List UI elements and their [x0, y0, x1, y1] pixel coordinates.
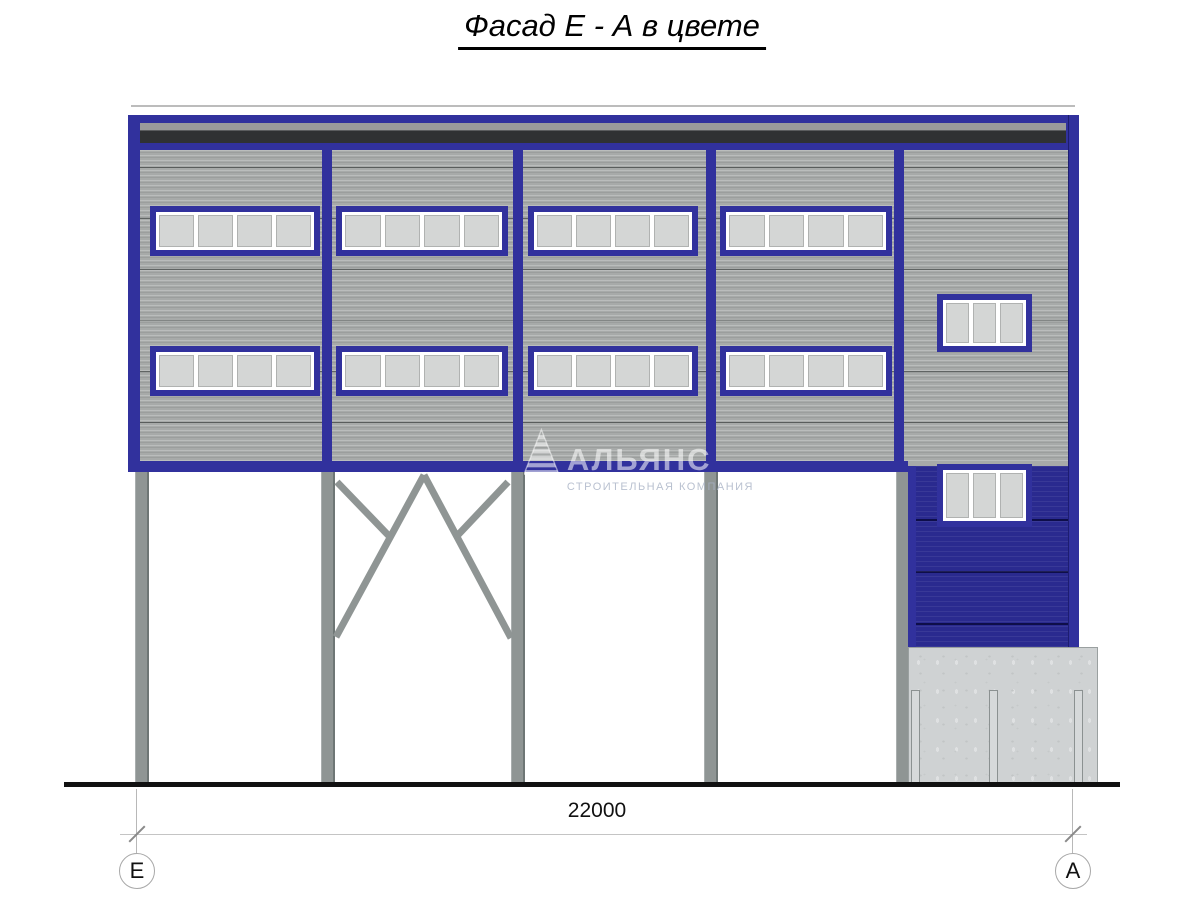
window-band [150, 206, 320, 256]
foundation-block [908, 647, 1098, 785]
window-pane [276, 355, 311, 387]
window-pane [159, 355, 194, 387]
roof-coping-line [131, 105, 1075, 107]
window-frame [342, 352, 502, 390]
window-pane [946, 473, 969, 518]
window-pane [615, 355, 650, 387]
window-pane [576, 215, 611, 247]
dimension-line [120, 834, 1087, 835]
window-pane [654, 215, 689, 247]
window-pane [848, 355, 884, 387]
window-pane [808, 215, 844, 247]
window-pane [424, 215, 460, 247]
window-pane [615, 215, 650, 247]
mullion [513, 150, 523, 462]
window-pane [973, 303, 996, 343]
window-band [720, 206, 892, 256]
drawing-title: Фасад Е - А в цвете [458, 8, 766, 50]
window-pane [729, 215, 765, 247]
mullion [322, 150, 332, 462]
parapet-gray-strip [140, 123, 1066, 130]
window-pane [198, 355, 233, 387]
window-pane [276, 215, 311, 247]
window-frame [943, 300, 1026, 346]
column [135, 472, 149, 783]
foundation-slot [911, 690, 920, 786]
window-pane [808, 355, 844, 387]
window-frame [534, 352, 692, 390]
window-pane [769, 215, 805, 247]
bottom-band [128, 461, 908, 472]
window-frame [156, 352, 314, 390]
window-pane [345, 355, 381, 387]
parapet-band [128, 115, 1078, 150]
window-pane [237, 215, 272, 247]
window-band [336, 346, 508, 396]
mullion [706, 150, 716, 462]
axis-marker-a: А [1055, 853, 1091, 889]
window-pane [729, 355, 765, 387]
window-pane [464, 215, 500, 247]
window-band [720, 346, 892, 396]
window-pane [537, 215, 572, 247]
window-pane [237, 355, 272, 387]
window-pane [654, 355, 689, 387]
window-pane [198, 215, 233, 247]
dimension-value: 22000 [547, 799, 647, 823]
small-window [937, 294, 1032, 352]
window-frame [156, 212, 314, 250]
right-pilaster [1068, 115, 1079, 647]
window-frame [342, 212, 502, 250]
window-pane [848, 215, 884, 247]
column [704, 472, 718, 783]
ground-line [64, 782, 1120, 787]
window-pane [946, 303, 969, 343]
window-pane [464, 355, 500, 387]
window-frame [534, 212, 692, 250]
siding-wall [140, 150, 1070, 462]
column [511, 472, 525, 783]
window-band [150, 346, 320, 396]
small-window [937, 464, 1032, 527]
parapet-dark-strip [140, 130, 1066, 143]
window-frame [726, 352, 886, 390]
window-frame [943, 470, 1026, 521]
window-band [528, 346, 698, 396]
window-pane [159, 215, 194, 247]
left-pilaster [128, 115, 140, 472]
window-pane [385, 355, 421, 387]
elevation-drawing: Фасад Е - А в цвете [0, 0, 1200, 900]
window-band [528, 206, 698, 256]
window-pane [1000, 303, 1023, 343]
extension-line-left [136, 789, 137, 853]
watermark-tagline: СТРОИТЕЛЬНАЯ КОМПАНИЯ [567, 481, 754, 493]
window-frame [726, 212, 886, 250]
window-pane [769, 355, 805, 387]
window-pane [424, 355, 460, 387]
foundation-slot [1074, 690, 1083, 786]
cross-bracing [333, 470, 513, 642]
window-pane [973, 473, 996, 518]
foundation-slot [989, 690, 998, 786]
axis-marker-e: Е [119, 853, 155, 889]
window-pane [345, 215, 381, 247]
extension-line-right [1072, 789, 1073, 853]
window-band [336, 206, 508, 256]
mullion [894, 150, 904, 462]
window-pane [537, 355, 572, 387]
window-pane [576, 355, 611, 387]
window-pane [385, 215, 421, 247]
window-pane [1000, 473, 1023, 518]
